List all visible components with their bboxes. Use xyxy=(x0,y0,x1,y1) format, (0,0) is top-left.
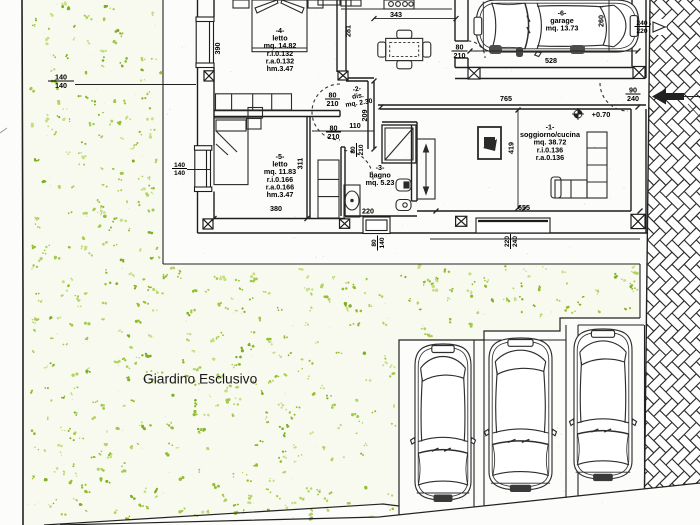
svg-text:210: 210 xyxy=(328,132,340,141)
svg-text:240: 240 xyxy=(636,20,647,27)
svg-text:r.a.0.136: r.a.0.136 xyxy=(536,153,564,162)
svg-text:240: 240 xyxy=(627,94,639,103)
svg-text:140: 140 xyxy=(174,162,185,169)
svg-text:528: 528 xyxy=(545,56,557,65)
svg-text:mq. 13.73: mq. 13.73 xyxy=(546,24,579,33)
svg-text:210: 210 xyxy=(358,144,365,155)
svg-text:80: 80 xyxy=(371,239,378,247)
svg-text:209: 209 xyxy=(360,110,369,122)
svg-text:260: 260 xyxy=(597,15,606,27)
svg-text:140: 140 xyxy=(174,170,185,177)
svg-text:220: 220 xyxy=(636,28,647,35)
svg-text:110: 110 xyxy=(349,121,361,130)
svg-text:240: 240 xyxy=(512,236,519,247)
svg-text:380: 380 xyxy=(270,204,282,213)
svg-text:390: 390 xyxy=(213,43,222,55)
svg-text:220: 220 xyxy=(504,236,511,247)
svg-text:655: 655 xyxy=(518,203,530,212)
svg-text:140: 140 xyxy=(55,73,67,82)
svg-text:80: 80 xyxy=(329,91,337,100)
svg-text:hm.3.47: hm.3.47 xyxy=(267,64,294,73)
svg-text:80: 80 xyxy=(330,124,338,133)
svg-text:343: 343 xyxy=(390,10,402,19)
svg-text:140: 140 xyxy=(379,237,386,248)
svg-text:90: 90 xyxy=(629,86,637,95)
svg-text:80: 80 xyxy=(350,146,357,154)
svg-text:220: 220 xyxy=(362,207,374,216)
svg-text:Giardino Esclusivo: Giardino Esclusivo xyxy=(143,372,258,387)
svg-text:311: 311 xyxy=(296,158,305,170)
svg-text:765: 765 xyxy=(500,94,512,103)
svg-text:210: 210 xyxy=(327,99,339,108)
svg-text:80: 80 xyxy=(456,43,464,52)
svg-text:210: 210 xyxy=(454,51,466,60)
svg-text:140: 140 xyxy=(55,81,67,90)
svg-text:419: 419 xyxy=(507,142,516,154)
svg-text:281: 281 xyxy=(344,25,353,37)
svg-text:mq. 5.23: mq. 5.23 xyxy=(366,178,395,187)
svg-text:+0.70: +0.70 xyxy=(592,110,611,119)
svg-text:hm.3.47: hm.3.47 xyxy=(267,190,294,199)
